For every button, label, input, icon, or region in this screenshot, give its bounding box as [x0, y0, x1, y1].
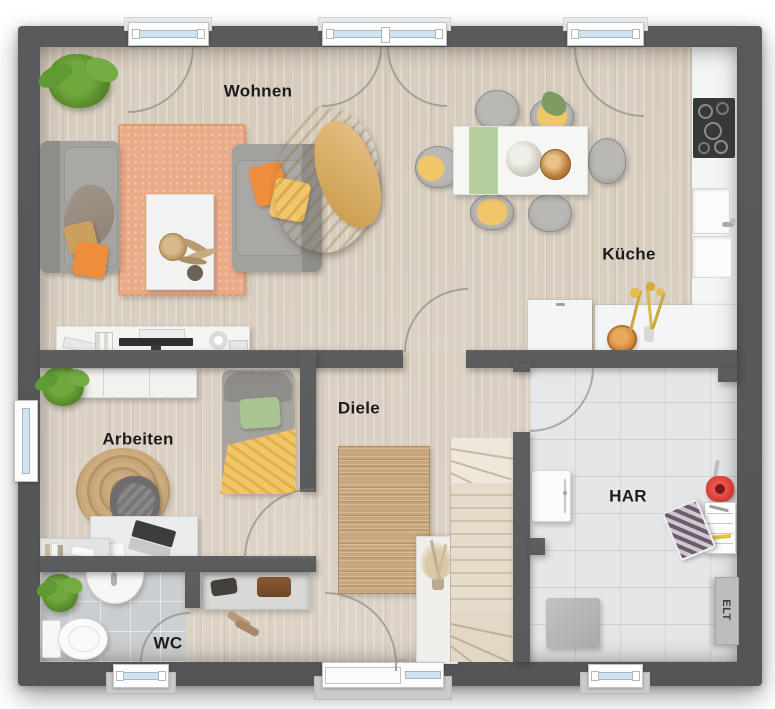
wc-sink	[86, 570, 142, 604]
front-door	[322, 662, 444, 688]
dining-chair	[528, 194, 572, 232]
wall-stub-har-ne	[718, 368, 737, 382]
pillow-green	[239, 397, 281, 430]
door-sidelight	[405, 671, 441, 679]
plant-living	[48, 54, 110, 108]
throw-yellow	[414, 151, 447, 184]
red-caddy	[706, 476, 734, 502]
dining-chair-yellow	[470, 194, 514, 230]
wrench-icon	[709, 505, 729, 513]
window-office-left	[14, 400, 38, 482]
window-kitchen	[567, 22, 644, 46]
toilet	[42, 616, 108, 660]
wall-har-stub	[513, 364, 530, 372]
stairs-straight	[450, 483, 514, 611]
pillow-orange	[72, 241, 110, 280]
window-har	[588, 664, 643, 688]
chair-seat-yellow	[477, 199, 507, 225]
stairs-bottom-winders	[450, 611, 514, 662]
centerpiece-flowers	[506, 141, 542, 177]
wardrobe-shelf	[202, 570, 310, 610]
blanket-yellow	[220, 426, 296, 494]
gold-bowl	[540, 149, 571, 180]
floorplan-canvas: Wohnen Küche Arbeiten Diele WC HAR ELT	[0, 0, 775, 709]
table-runner	[469, 127, 498, 194]
kitchen-sink	[692, 188, 732, 282]
label-har: HAR	[609, 488, 647, 505]
coffee-table	[146, 194, 214, 290]
door-leaf	[325, 667, 401, 684]
accessories-dark	[210, 577, 238, 596]
label-wohnen: Wohnen	[224, 83, 293, 100]
cooktop	[693, 98, 735, 158]
window-top-left	[128, 22, 209, 46]
table-plant	[175, 245, 215, 291]
sofa-left	[40, 141, 120, 273]
faucet-icon	[111, 572, 117, 586]
dining-table	[453, 126, 588, 195]
shoes	[226, 614, 260, 638]
book-stack	[95, 332, 113, 352]
decor-ring	[209, 331, 228, 350]
window-top-center	[322, 22, 447, 46]
dining-chair	[588, 138, 626, 184]
dining-chair	[475, 90, 519, 130]
daybed	[222, 370, 294, 494]
window-wc	[113, 664, 169, 688]
plant-office	[42, 366, 84, 406]
door-handle-icon	[395, 659, 407, 671]
wall-mid-left	[40, 350, 403, 368]
wall-mid-right	[466, 350, 737, 368]
floorplan: Wohnen Küche Arbeiten Diele WC HAR ELT	[18, 26, 762, 686]
boiler	[531, 470, 571, 522]
sofa-backrest	[40, 141, 60, 273]
bag-brown	[257, 577, 291, 597]
wall-arbeiten-wc	[40, 556, 316, 572]
label-arbeiten: Arbeiten	[102, 431, 173, 448]
flower-vase	[630, 288, 666, 348]
wall-wc-east	[185, 572, 200, 608]
label-kueche: Küche	[602, 246, 655, 263]
wall-arbeiten-diele	[300, 350, 316, 492]
label-wc: WC	[154, 635, 183, 652]
washing-machine	[546, 598, 600, 648]
label-elt: ELT	[720, 599, 732, 620]
stairs-top-winders	[450, 438, 514, 484]
window-mullion	[381, 27, 390, 43]
laptop	[128, 520, 177, 560]
label-diele: Diele	[338, 400, 380, 417]
plant-wc	[42, 574, 78, 612]
wall-pier-har	[530, 538, 545, 555]
wall-diele-har	[513, 432, 530, 662]
